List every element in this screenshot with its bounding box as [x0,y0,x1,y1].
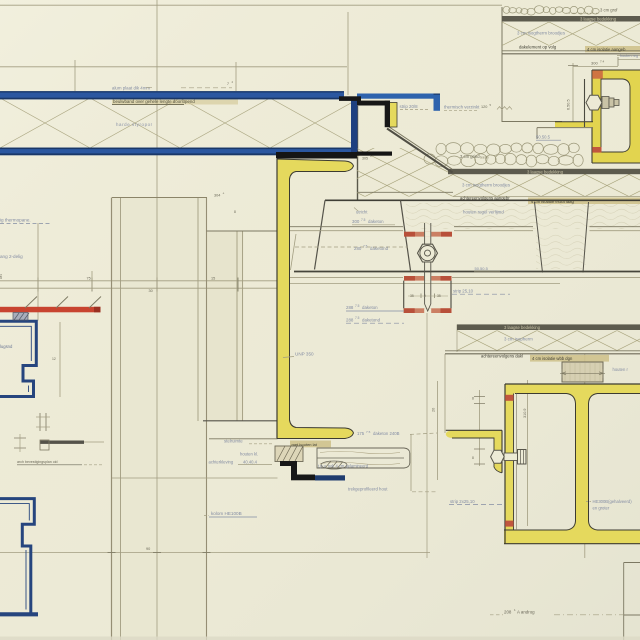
svg-text:dakelement op volg: dakelement op volg [519,45,557,50]
svg-text:harde styropor: harde styropor [116,122,153,127]
svg-text:en groter: en groter [593,505,610,510]
svg-text:arch bevestigingsplan oid: arch bevestigingsplan oid [17,460,58,464]
svg-text:met houten lat: met houten lat [292,442,318,447]
svg-text:ig thermopane.: ig thermopane. [0,217,31,222]
svg-text:daketon: daketon [362,305,378,310]
svg-text:achterkleving: achterkleving [209,459,234,464]
svg-text:3 cm isogtherm broodjes: 3 cm isogtherm broodjes [517,31,566,36]
svg-text:teerm: teerm [480,156,489,160]
svg-text:288: 288 [346,317,354,322]
svg-text:3 cm grind: 3 cm grind [460,154,480,159]
svg-text:90: 90 [146,547,150,551]
svg-text:175: 175 [357,431,365,436]
svg-text:5: 5 [0,276,2,280]
svg-text:7.5: 7.5 [366,430,371,434]
svg-text:3 cm grof: 3 cm grof [600,8,618,13]
svg-text:288: 288 [346,305,354,310]
svg-text:trekgeprofileerd hout: trekgeprofileerd hout [348,487,388,492]
svg-text:20: 20 [432,408,436,412]
svg-text:achtereenvolgens dakl: achtereenvolgens dakl [481,353,523,358]
svg-text:8: 8 [472,397,474,401]
svg-text:+: + [223,192,225,196]
svg-text:7.4: 7.4 [600,59,605,63]
svg-text:305: 305 [362,156,368,160]
svg-text:3 cm isogtherm broodjes: 3 cm isogtherm broodjes [462,182,511,187]
svg-text:stelruimte: stelruimte [224,438,243,443]
svg-text:kolom HE100B: kolom HE100B [211,511,242,516]
svg-text:40.40.4: 40.40.4 [243,459,258,464]
svg-text:8: 8 [472,456,474,460]
svg-text:3 laagse bedekking: 3 laagse bedekking [527,169,564,174]
svg-text:280: 280 [354,246,362,251]
svg-text:strip 2x25,10: strip 2x25,10 [450,499,475,504]
svg-text:310.9: 310.9 [523,408,527,418]
svg-text:300: 300 [352,219,360,224]
svg-text:+: + [370,155,372,159]
svg-text:strip 25,10: strip 25,10 [453,288,474,293]
svg-text:UNP 350: UNP 350 [295,352,314,357]
svg-text:A androg: A androg [517,609,535,614]
svg-text:12: 12 [52,357,56,361]
svg-text:7.5: 7.5 [363,244,368,248]
svg-text:t.p.v. nok 4 cm gelamineerd: t.p.v. nok 4 cm gelamineerd [318,464,369,469]
svg-text:HE300B(gehalveerd): HE300B(gehalveerd) [593,499,633,504]
svg-text:achtereenvolgens aangebr: achtereenvolgens aangebr [460,195,510,200]
svg-text:35: 35 [437,294,441,298]
svg-text:120: 120 [481,105,487,109]
svg-text:50.50.5: 50.50.5 [536,134,551,139]
svg-text:3 cm isopherm: 3 cm isopherm [504,336,533,341]
svg-text:7.5: 7.5 [355,304,360,308]
svg-text:3 laagse bedekking: 3 laagse bedekking [580,16,617,21]
svg-text:daketond: daketond [362,317,381,322]
svg-text:houten kl.: houten kl. [240,452,258,457]
svg-text:50.50.5: 50.50.5 [475,266,489,271]
svg-text:houten reg: houten reg [620,54,638,58]
svg-text:3 laagse bedekking: 3 laagse bedekking [504,325,541,330]
svg-text:daketon: daketon [368,219,384,224]
svg-text:7.5: 7.5 [361,218,366,222]
svg-text:4 cm isolatie aangeb: 4 cm isolatie aangeb [587,47,626,52]
svg-text:208: 208 [504,609,512,614]
svg-text:strip 20/8: strip 20/8 [400,104,419,109]
svg-text:304: 304 [214,194,220,198]
svg-text:beulwband over gehele lengte d: beulwband over gehele lengte doorlopend [113,99,195,104]
svg-text:ang 2-delig: ang 2-delig [0,254,23,259]
svg-text:75: 75 [87,277,91,281]
svg-text:houten r: houten r [613,367,629,372]
svg-text:300: 300 [591,60,598,65]
svg-text:7: 7 [227,82,229,86]
svg-text:utricht: utricht [356,209,368,214]
svg-text:daketon 240B: daketon 240B [373,431,400,436]
svg-text:houten regel verlijmd: houten regel verlijmd [463,210,504,215]
svg-text:35: 35 [410,294,414,298]
svg-text:4 cm isolatie wbb dgn: 4 cm isolatie wbb dgn [532,356,573,361]
svg-text:7.5: 7.5 [355,316,360,320]
svg-text:lugsnd: lugsnd [0,344,13,349]
svg-text:9: 9 [424,294,426,298]
svg-text:thermisch verzinkt: thermisch verzinkt [444,105,480,110]
svg-text:daketond: daketond [370,246,389,251]
svg-text:15: 15 [211,276,215,280]
svg-text:4 cm isolatie extra laag: 4 cm isolatie extra laag [531,199,574,204]
svg-text:6.50.5: 6.50.5 [567,99,571,110]
svg-text:8: 8 [234,210,236,214]
svg-text:30: 30 [149,289,153,293]
svg-text:alum plaat dik 4mm: alum plaat dik 4mm [112,85,150,90]
